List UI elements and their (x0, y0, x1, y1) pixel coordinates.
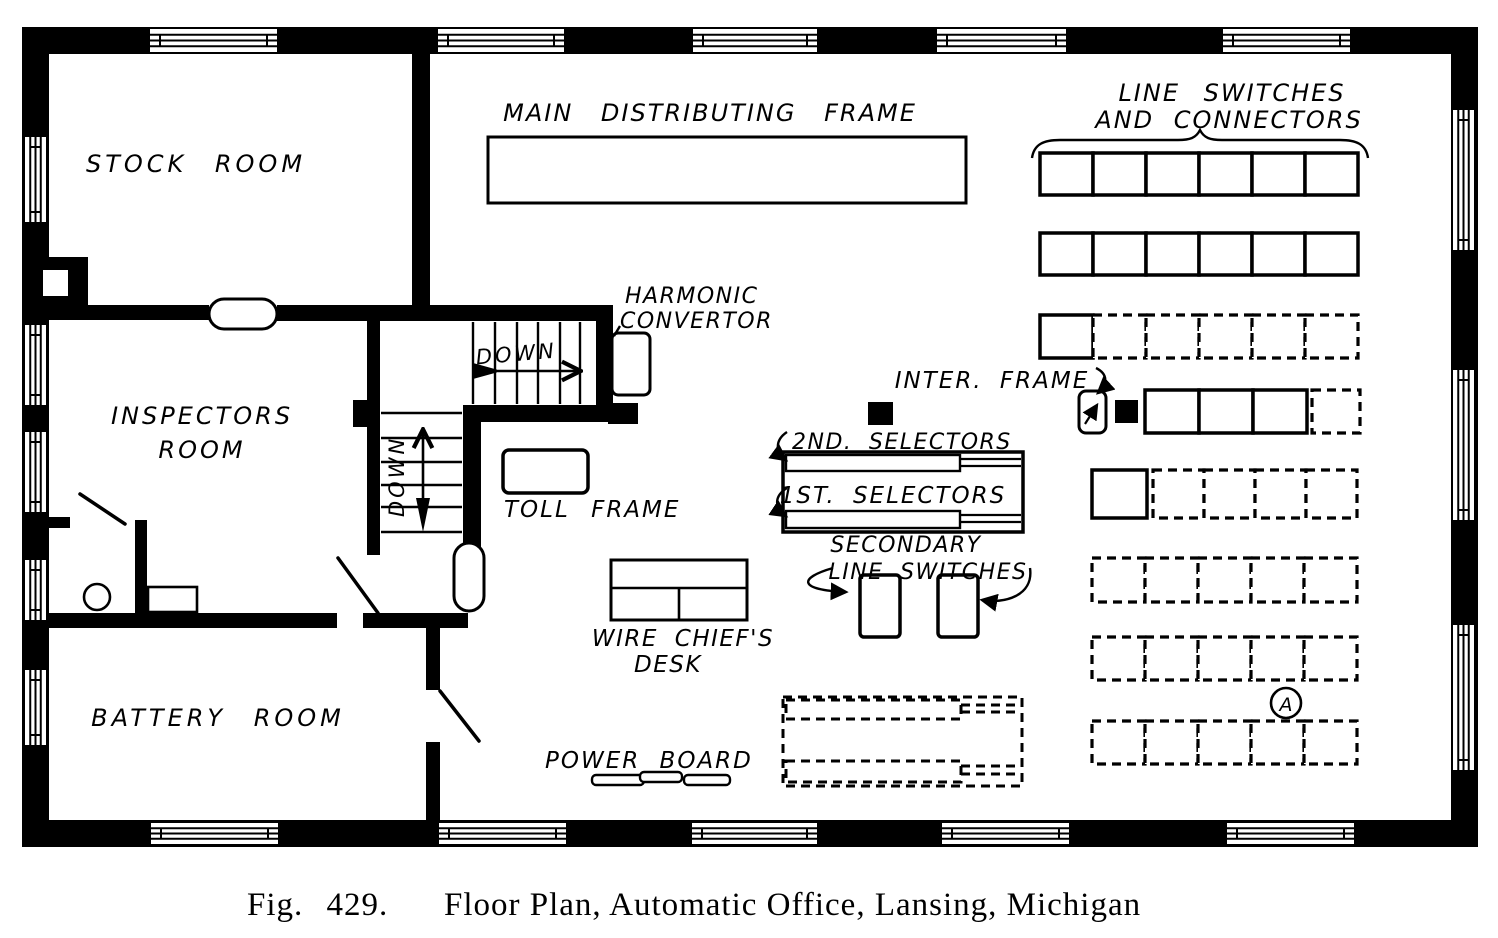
window-symbol (942, 823, 1069, 844)
line-switch-cell (1306, 470, 1357, 518)
floor-plan-figure: A STOCK ROOM INSPECTORS ROOM BATTERY ROO… (0, 0, 1498, 938)
filled-unit (1115, 400, 1138, 423)
window-symbol (25, 432, 46, 512)
line-switch-cell (1145, 390, 1199, 433)
door-swing (338, 558, 378, 613)
window-symbol (937, 29, 1066, 52)
line-switch-cell (1253, 390, 1307, 433)
power-board-label: POWER BOARD (545, 748, 753, 774)
line-switch-cell (1252, 233, 1305, 275)
figure-title: Floor Plan, Automatic Office, Lansing, M… (444, 887, 1141, 923)
main-distributing-frame-box (488, 137, 966, 203)
harmonic-label-2: CONVERTOR (620, 309, 773, 334)
line-switch-grid (1040, 153, 1360, 764)
window-symbol (25, 137, 46, 222)
window-symbol (151, 823, 278, 844)
line-switches-label-1: LINE SWITCHES (1118, 79, 1345, 107)
line-switch-cell (1251, 558, 1304, 602)
window-symbol (1453, 110, 1474, 250)
double-door-symbol (454, 543, 484, 611)
inspectors-room-label-2: ROOM (158, 436, 245, 464)
line-switch-cell (1304, 721, 1357, 764)
line-switch-cell (1252, 153, 1305, 195)
wire-chiefs-label-2: DESK (634, 652, 702, 678)
window-symbol (1227, 823, 1354, 844)
line-switch-cell (1040, 315, 1093, 358)
line-switch-cell (1251, 721, 1304, 764)
inspectors-room-label: INSPECTORS (111, 402, 293, 430)
battery-room-label: BATTERY ROOM (91, 704, 345, 732)
line-switch-cell (1204, 470, 1255, 518)
window-symbol (150, 29, 277, 52)
line-switch-cell (1305, 233, 1358, 275)
line-switch-cell (1199, 153, 1252, 195)
window-symbol (1223, 29, 1350, 52)
line-switch-cell (1146, 153, 1199, 195)
line-switch-cell (1092, 721, 1145, 764)
lower-stair-right-wall (463, 405, 481, 547)
line-switches-label-2: AND CONNECTORS (1093, 106, 1362, 134)
first-selectors-label: 1ST. SELECTORS (780, 483, 1006, 509)
door-swing (440, 691, 479, 741)
line-switch-cell (1092, 470, 1147, 518)
secondary-label-1: SECONDARY (830, 533, 981, 558)
inspectors-room-right-wall (367, 318, 380, 555)
figure-number: Fig. 429. (247, 887, 388, 923)
floor-plan-canvas: A STOCK ROOM INSPECTORS ROOM BATTERY ROO… (0, 0, 1498, 938)
secondary-label-2: LINE SWITCHES (828, 560, 1027, 585)
line-switch-cell (1305, 315, 1358, 358)
line-switch-cell (1093, 233, 1146, 275)
toll-frame-box (503, 450, 588, 493)
window-symbol (25, 560, 46, 620)
line-switch-cell (1198, 558, 1251, 602)
line-switch-cell (1198, 721, 1251, 764)
line-switch-cell (1092, 558, 1145, 602)
down-label-lower: DOWN (385, 436, 409, 517)
wire-chiefs-desk-box (611, 560, 747, 620)
line-switch-cell (1093, 315, 1146, 358)
harmonic-label-1: HARMONIC (625, 284, 758, 309)
toll-frame-label: TOLL FRAME (504, 497, 680, 523)
marker-a: A (1271, 688, 1301, 718)
basin-fixture (84, 584, 110, 610)
line-switch-cell (1305, 153, 1358, 195)
line-switch-cell (1146, 315, 1199, 358)
window-symbol (693, 29, 817, 52)
inspectors-room-bottom-wall (49, 613, 337, 628)
door-swing (80, 494, 125, 524)
down-label-upper: DOWN (475, 339, 558, 370)
harmonic-convertor-box (612, 333, 650, 395)
stock-room-bottom-wall (49, 305, 209, 320)
line-switch-cell (1040, 233, 1093, 275)
line-switch-cell (1251, 637, 1304, 680)
line-switch-cell (1146, 233, 1199, 275)
line-switch-cell (1199, 315, 1252, 358)
line-switch-cell (1153, 470, 1204, 518)
inter-frame-label: INTER. FRAME (895, 368, 1090, 394)
stock-room-right-wall (412, 54, 430, 321)
stairwell-bottom-wall (468, 405, 638, 422)
second-selectors-label: 2ND. SELECTORS (792, 430, 1012, 455)
window-symbol (25, 670, 46, 745)
wire-chiefs-label-1: WIRE CHIEF'S (592, 626, 774, 652)
stairwell-top-wall (277, 305, 613, 321)
filled-unit (868, 402, 893, 425)
window-symbol (439, 823, 566, 844)
figure-caption: Fig. 429. Floor Plan, Automatic Office, … (247, 887, 1141, 923)
marker-a-label: A (1278, 694, 1293, 716)
line-switch-cell (1092, 637, 1145, 680)
line-switch-cell (1145, 637, 1198, 680)
line-switch-cell (1304, 558, 1357, 602)
line-switch-cell (1312, 390, 1360, 433)
cabinet-fixture (148, 587, 197, 612)
window-symbol (692, 823, 817, 844)
stock-room-label: STOCK ROOM (86, 150, 306, 178)
line-switch-cell (1093, 153, 1146, 195)
line-switch-cell (1198, 637, 1251, 680)
stairwell-right-wall (596, 309, 613, 407)
battery-room-right-wall (426, 628, 440, 690)
line-switch-cell (1255, 470, 1306, 518)
future-frame-dashed (783, 697, 1022, 786)
line-switch-cell (1145, 721, 1198, 764)
line-switch-cell (1304, 637, 1357, 680)
line-switch-cell (1199, 233, 1252, 275)
window-symbol (25, 325, 46, 405)
window-symbol (1453, 370, 1474, 520)
closet-wall (135, 520, 147, 613)
line-switch-cell (1040, 153, 1093, 195)
line-switch-cell (1252, 315, 1305, 358)
line-switch-cell (1145, 558, 1198, 602)
window-symbol (1453, 625, 1474, 770)
line-switch-cell (1199, 390, 1253, 433)
double-door-symbol (209, 299, 277, 329)
window-symbol (438, 29, 564, 52)
mdf-label: MAIN DISTRIBUTING FRAME (503, 99, 917, 127)
